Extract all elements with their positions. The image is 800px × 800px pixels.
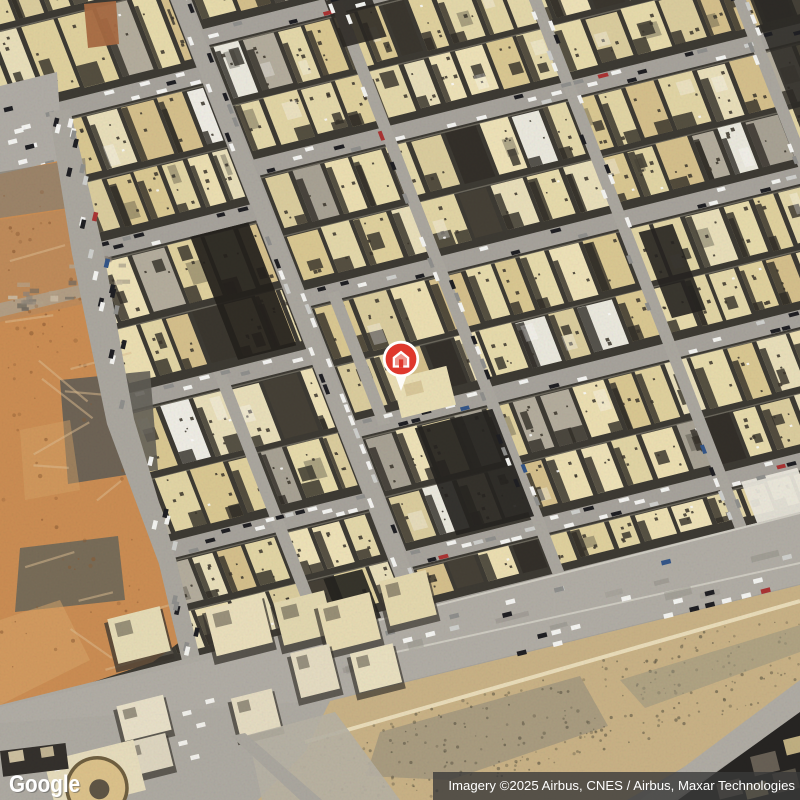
svg-text:Google: Google: [9, 771, 80, 798]
svg-text:Imagery ©2025 Airbus, CNES / A: Imagery ©2025 Airbus, CNES / Airbus, Max…: [448, 778, 795, 793]
